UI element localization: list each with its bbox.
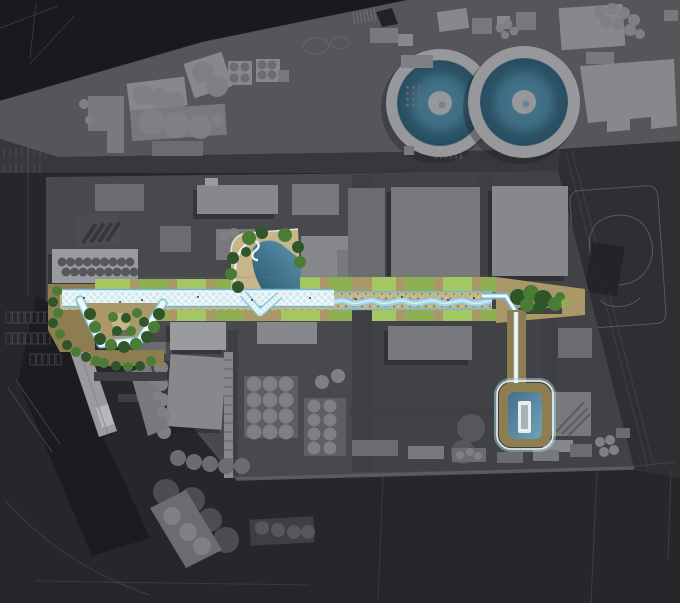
large-warehouse-west: [391, 187, 480, 280]
solar-array: [75, 213, 121, 247]
large-warehouse-east: [492, 186, 568, 276]
south-warehouse: [388, 326, 472, 360]
site-plan-render: Aerial masterplan render: industrial dis…: [0, 0, 680, 603]
silo-hall: [166, 354, 227, 430]
stepped-building: [580, 59, 677, 132]
masterplan-svg: Aerial masterplan render: industrial dis…: [0, 0, 680, 603]
